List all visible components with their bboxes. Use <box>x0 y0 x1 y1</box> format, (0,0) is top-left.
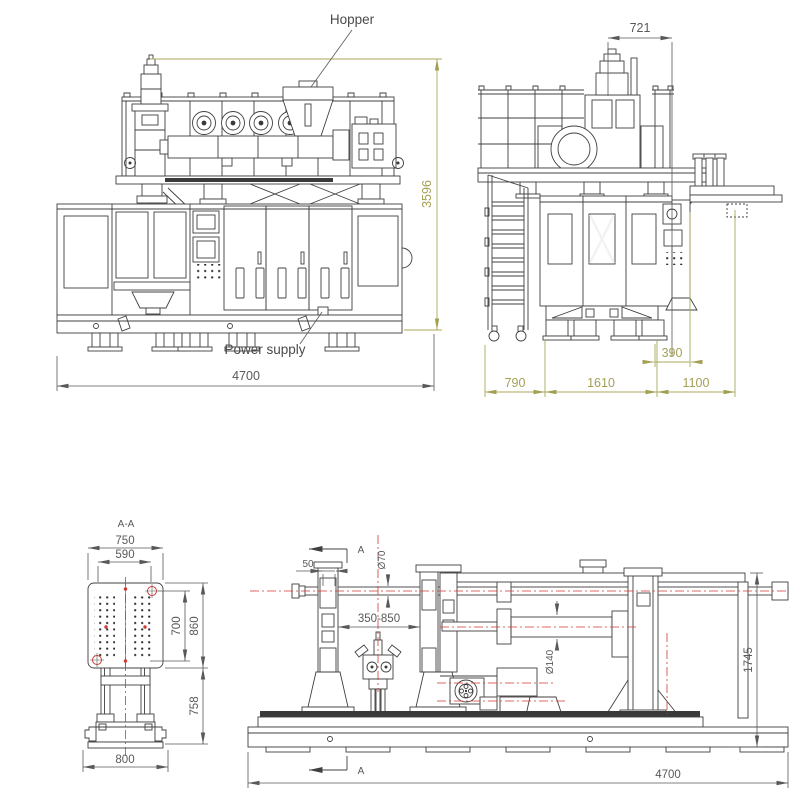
dim-text-arm-extension: 1100 <box>683 376 710 390</box>
dim-text-overall-width: 4700 <box>232 369 260 383</box>
dim-text-bolt-span-height: 700 <box>171 616 183 635</box>
section-title: A-A <box>118 519 135 530</box>
extruder-barrel <box>160 136 333 166</box>
accumulator-head <box>132 55 190 214</box>
die-section-view: A A 50 Ø70 350-850 Ø140 <box>248 535 788 788</box>
dim-bolt-span-width: 590 <box>98 549 151 582</box>
dim-text-leg-height: 758 <box>189 696 201 715</box>
dim-text-base-width: 800 <box>115 754 134 766</box>
dim-text-head-offset: 721 <box>630 21 651 35</box>
side-cabinet <box>540 196 697 340</box>
dim-text-nozzle-diameter: Ø70 <box>377 550 388 569</box>
ladder-wheel <box>516 331 526 341</box>
dim-text-stroke-range: 350-850 <box>358 613 400 625</box>
dim-text-bolt-span-width: 590 <box>115 549 134 561</box>
dim-text-platform-overhang: 390 <box>662 346 683 360</box>
drive-pulleys <box>193 112 302 135</box>
screw-shaft <box>442 609 628 657</box>
ladder-wheel <box>489 331 499 341</box>
dim-text-offset: 50 <box>302 559 314 570</box>
clamp-platen <box>114 282 190 290</box>
dim-leg-height: 758 <box>165 668 208 744</box>
control-panel <box>193 211 221 281</box>
dim-text-plate-height: 860 <box>189 616 201 635</box>
section-view-aa: A-A <box>83 519 208 772</box>
hopper-label: Hopper <box>311 12 375 87</box>
section-marker-top: A <box>309 545 365 563</box>
dim-text-plate-width: 750 <box>115 535 134 547</box>
base-platform <box>248 711 788 752</box>
section-marker-bottom: A <box>309 756 365 777</box>
section-marker-top-text: A <box>358 545 365 556</box>
dim-text-base-length: 4700 <box>655 769 681 781</box>
side-base <box>543 306 667 340</box>
dim-text-body-width: 1610 <box>587 376 615 390</box>
left-column <box>302 562 354 717</box>
dim-text-ladder-depth: 790 <box>505 376 526 390</box>
dim-shaft-diameter: Ø140 <box>545 601 557 674</box>
dim-stroke-range: 350-850 <box>338 613 420 627</box>
machine-drawing: 3596 4700 Hopper Power supply <box>0 0 800 800</box>
hopper-label-text: Hopper <box>330 12 375 27</box>
drawing-canvas: 3596 4700 Hopper Power supply <box>0 0 800 800</box>
machine-cabinet <box>57 204 412 315</box>
ladder <box>485 175 528 341</box>
section-marker-bottom-text: A <box>358 766 365 777</box>
front-view: 3596 4700 Hopper Power supply <box>57 12 442 391</box>
dim-base-width: 800 <box>83 750 168 772</box>
top-beam <box>445 560 748 718</box>
dim-text-frame-height: 1745 <box>743 647 755 673</box>
dim-nozzle-diameter: Ø70 <box>377 550 388 608</box>
dim-text-shaft-diameter: Ø140 <box>545 649 556 674</box>
power-supply-connector <box>318 307 328 315</box>
lifting-ring <box>402 248 412 268</box>
dim-text-overall-height: 3596 <box>420 180 434 208</box>
support-braces <box>200 184 384 204</box>
power-supply-label-text: Power supply <box>224 342 305 357</box>
side-view: 721 390 790 1610 1100 <box>478 21 782 397</box>
